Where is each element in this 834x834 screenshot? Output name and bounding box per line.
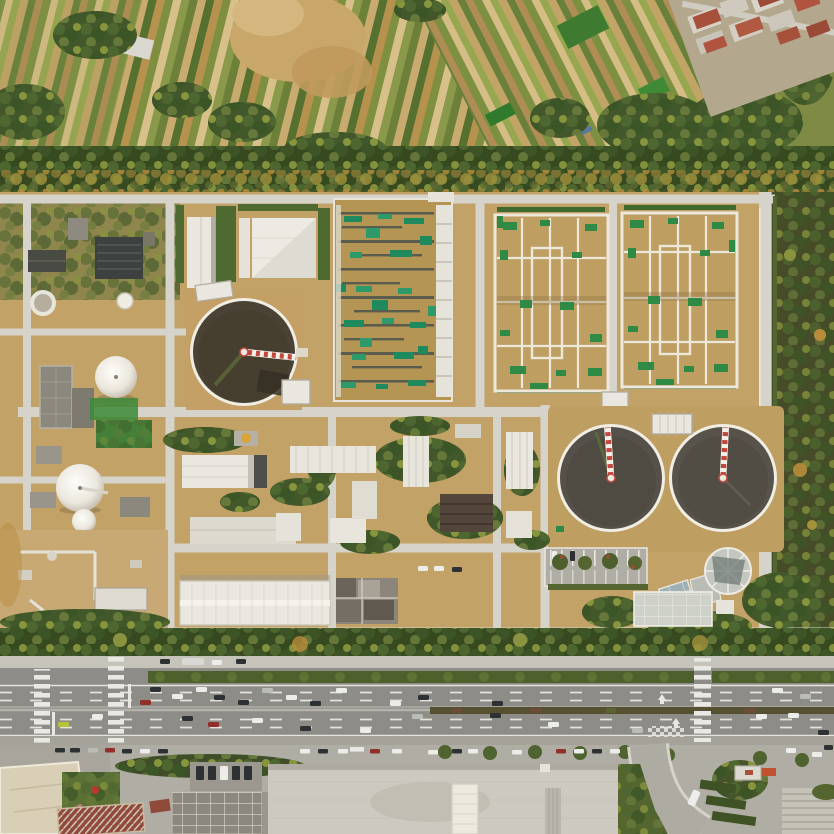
car: [160, 659, 170, 664]
bus: [182, 658, 204, 665]
car: [208, 766, 216, 780]
car: [92, 714, 103, 719]
car: [338, 749, 348, 754]
clarifier-hub: [240, 348, 248, 356]
car: [574, 749, 584, 754]
median-north: [148, 671, 834, 683]
car: [548, 722, 559, 727]
car: [310, 701, 321, 706]
car: [220, 766, 228, 780]
clarifier-hub: [607, 474, 615, 482]
car: [452, 567, 462, 572]
aeration-basin-block: [334, 192, 454, 401]
car: [196, 687, 207, 692]
car: [158, 749, 168, 754]
admin-parking: [545, 548, 648, 590]
car: [800, 694, 811, 699]
arterial-road: [0, 628, 834, 745]
storage-tank: [32, 292, 54, 314]
car: [772, 688, 783, 693]
outbuilding: [330, 518, 366, 543]
digester-building: [440, 494, 493, 532]
car: [632, 728, 643, 733]
car: [232, 766, 240, 780]
blower-house: [652, 414, 692, 434]
car: [812, 752, 822, 757]
clarifier-west: [186, 281, 310, 410]
car: [172, 694, 183, 699]
bio-tank-west: [495, 215, 608, 391]
car: [824, 745, 833, 750]
hatched-zone: [648, 726, 684, 737]
car: [360, 728, 371, 733]
street-frontage: [0, 745, 834, 834]
zebra-crossing: [108, 656, 124, 745]
car: [58, 722, 69, 727]
car: [818, 730, 829, 735]
car: [140, 700, 151, 705]
plant-campus: [0, 192, 834, 650]
car: [452, 749, 462, 754]
small-tank: [117, 293, 133, 309]
car: [252, 718, 263, 723]
car: [140, 749, 150, 754]
car: [182, 716, 193, 721]
workshop: [290, 446, 376, 473]
car: [556, 749, 566, 754]
car: [214, 695, 225, 700]
basin-walkway: [436, 205, 452, 397]
car: [238, 700, 249, 705]
car: [70, 748, 80, 753]
car: [196, 766, 204, 780]
car: [392, 749, 402, 754]
shelterbelt-tree-line: [0, 146, 834, 194]
car: [88, 748, 98, 753]
car: [370, 749, 380, 754]
car: [570, 551, 575, 561]
building: [239, 218, 250, 278]
car: [788, 713, 799, 718]
bio-tank-east: [622, 213, 737, 387]
car: [786, 748, 796, 753]
car: [468, 749, 478, 754]
car: [418, 566, 428, 571]
car: [318, 749, 328, 754]
car: [212, 660, 222, 665]
zebra-crossing: [694, 658, 711, 742]
roadside-parking-stalls: [752, 208, 761, 413]
car: [262, 688, 273, 693]
car: [490, 713, 501, 718]
car: [756, 714, 767, 719]
car: [418, 695, 429, 700]
car: [244, 766, 252, 780]
outbuilding: [276, 513, 301, 541]
canopy: [452, 784, 478, 834]
clarifier-east: [669, 424, 777, 532]
plaza: [268, 764, 618, 834]
median-center-planted: [430, 707, 834, 714]
car: [286, 695, 297, 700]
car: [512, 750, 522, 755]
car: [300, 749, 310, 754]
aerial-photo: [0, 0, 834, 834]
small-building: [762, 768, 776, 776]
zebra-crossing: [34, 669, 50, 745]
clarifier-center: [557, 424, 665, 532]
car: [122, 749, 132, 754]
car: [55, 748, 65, 753]
tiled-roof: [57, 803, 145, 834]
car: [105, 748, 115, 753]
clarifier-hub: [719, 474, 727, 482]
car: [300, 726, 311, 731]
car: [412, 714, 423, 719]
car: [150, 687, 161, 692]
outbuilding: [506, 511, 532, 538]
car: [390, 701, 401, 706]
car: [336, 688, 347, 693]
car: [428, 750, 438, 755]
equipment-yard: [0, 523, 170, 640]
outbuilding: [352, 481, 377, 519]
workshop: [182, 455, 254, 488]
small-dome: [72, 509, 96, 533]
car: [208, 722, 219, 727]
car: [492, 701, 503, 706]
car: [434, 566, 444, 571]
car: [236, 659, 246, 664]
clarifier-pad-east: [548, 406, 784, 552]
car: [610, 749, 620, 754]
outbuilding: [282, 380, 310, 404]
car: [592, 749, 602, 754]
yard-building: [95, 588, 147, 610]
